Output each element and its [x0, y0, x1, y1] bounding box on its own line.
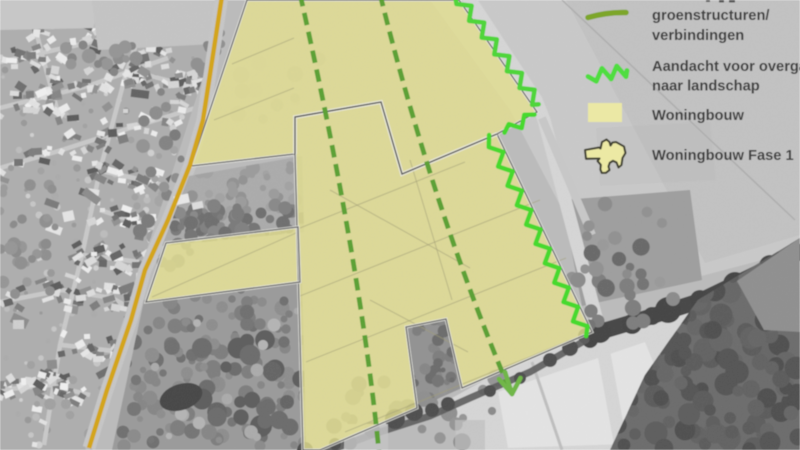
svg-text:naar landschap: naar landschap	[652, 79, 760, 95]
svg-text:Woningbouw: Woningbouw	[652, 108, 744, 124]
svg-text:groenstructuren/: groenstructuren/	[652, 8, 770, 24]
svg-text:verbindingen: verbindingen	[652, 28, 744, 44]
svg-text:Woningbouw Fase 1: Woningbouw Fase 1	[652, 148, 794, 164]
svg-text:Aandacht voor overgang: Aandacht voor overgang	[652, 59, 800, 75]
